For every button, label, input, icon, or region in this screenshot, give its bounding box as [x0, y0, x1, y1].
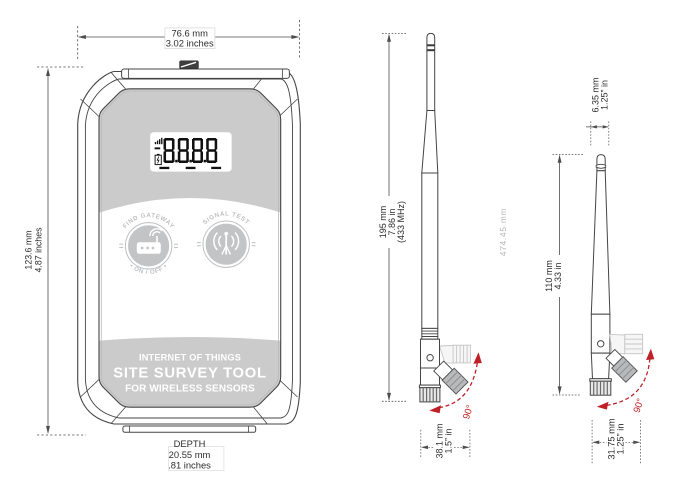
svg-text:4.87 inches: 4.87 inches	[34, 227, 44, 273]
svg-text:DEPTH: DEPTH	[174, 438, 206, 449]
svg-text:INTERNET OF THINGS: INTERNET OF THINGS	[139, 353, 241, 363]
svg-text:1.5” in: 1.5” in	[443, 428, 453, 453]
svg-text:FOR WIRELESS SENSORS: FOR WIRELESS SENSORS	[125, 384, 255, 395]
svg-text:SITE SURVEY TOOL: SITE SURVEY TOOL	[113, 366, 266, 382]
svg-text:1.25” in: 1.25” in	[615, 423, 625, 454]
svg-text:.81 inches: .81 inches	[168, 459, 211, 470]
svg-text:123.6 mm: 123.6 mm	[24, 230, 34, 269]
svg-text:(433 MHz): (433 MHz)	[396, 201, 406, 243]
svg-text:20.55 mm: 20.55 mm	[169, 449, 211, 460]
svg-text:474.45 mm: 474.45 mm	[499, 208, 508, 256]
svg-text:3.02 inches: 3.02 inches	[166, 38, 214, 49]
svg-text:1.25” in: 1.25” in	[599, 80, 609, 110]
svg-text:4.33 in: 4.33 in	[553, 262, 563, 289]
